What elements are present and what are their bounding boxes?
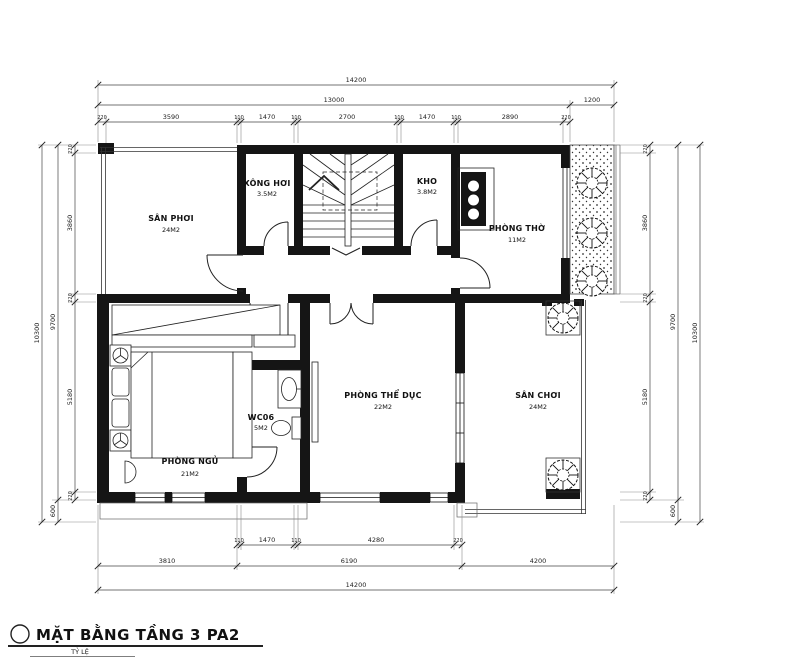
room-label-kho: KHO — [417, 177, 437, 186]
tree-icon — [548, 460, 578, 490]
dim-bottom-1: 1470 — [259, 536, 276, 544]
dim-bottom-2: 110 — [291, 538, 301, 544]
dim-right-4: 220 — [643, 491, 649, 501]
tree-icon — [577, 266, 607, 296]
dim-top-0: 220 — [97, 115, 107, 121]
dim-top-9: 2890 — [502, 113, 519, 121]
dim-right-bottom: 600 — [669, 505, 677, 517]
dim-right-outer: 10300 — [691, 323, 699, 344]
room-area-wc: 5M2 — [254, 424, 268, 432]
tree-icon — [577, 218, 607, 248]
tree-icon — [548, 303, 578, 333]
dim-top-main: 13000 — [324, 96, 345, 104]
altar-cabinet — [458, 168, 494, 230]
floor-plan-drawing: 14200 13000 1200 220 3590 110 1470 110 2… — [0, 0, 800, 658]
dim-top-10: 220 — [561, 115, 571, 121]
dim-left-bottom: 600 — [49, 505, 57, 517]
drawing-title: MẶT BẰNG TẦNG 3 PA2 — [36, 623, 240, 644]
scale-label: TỶ LỆ — [70, 647, 89, 656]
dim-bottom-mid-0: 3810 — [159, 557, 176, 565]
room-label-wc: WC06 — [248, 413, 275, 422]
floor-plan-sheet: 14200 13000 1200 220 3590 110 1470 110 2… — [0, 0, 800, 658]
dim-right-2: 220 — [643, 293, 649, 303]
dim-top-2: 110 — [234, 115, 244, 121]
title-block: MẶT BẰNG TẦNG 3 PA2 TỶ LỆ — [8, 623, 263, 657]
dim-top-1: 3590 — [163, 113, 180, 121]
dim-bottom-mid-1: 6190 — [341, 557, 358, 565]
dim-left-2: 220 — [68, 293, 74, 303]
room-label-xong-hoi: XÔNG HƠI — [244, 177, 291, 188]
dim-bottom-0: 110 — [234, 538, 244, 544]
dim-top-4: 110 — [291, 115, 301, 121]
dim-top-7: 1470 — [419, 113, 436, 121]
dim-left-outer: 10300 — [33, 323, 41, 344]
dim-top-5: 2700 — [339, 113, 356, 121]
dim-top-planter: 1200 — [584, 96, 601, 104]
dim-left-1: 3860 — [66, 215, 74, 232]
dim-bottom-3: 4280 — [368, 536, 385, 544]
dim-right-0: 220 — [643, 144, 649, 154]
room-area-san-phoi: 24M2 — [162, 226, 180, 234]
room-area-phong-the-duc: 22M2 — [374, 403, 392, 411]
dim-bottom-mid-2: 4200 — [530, 557, 547, 565]
dim-right-inner: 9700 — [669, 314, 677, 331]
dim-left-3: 5180 — [66, 389, 74, 406]
dim-top-total: 14200 — [346, 76, 367, 84]
dim-bottom-total: 14200 — [346, 581, 367, 589]
dim-top-6: 110 — [394, 115, 404, 121]
room-label-san-phoi: SÂN PHƠI — [148, 212, 194, 223]
room-area-kho: 3.8M2 — [417, 188, 437, 196]
dim-right-3: 5180 — [641, 389, 649, 406]
wc-fixtures — [272, 370, 303, 439]
dim-top-3: 1470 — [259, 113, 276, 121]
dim-top-8: 110 — [451, 115, 461, 121]
room-label-san-choi: SÂN CHƠI — [515, 389, 561, 400]
staircase — [303, 154, 394, 255]
dim-right-1: 3860 — [641, 215, 649, 232]
dim-left-0: 220 — [68, 144, 74, 154]
title-marker-icon — [11, 625, 29, 643]
room-area-phong-ngu: 21M2 — [181, 470, 199, 478]
room-area-san-choi: 24M2 — [529, 403, 547, 411]
dim-left-inner: 9700 — [49, 314, 57, 331]
room-area-phong-tho: 11M2 — [508, 236, 526, 244]
gym-mirror — [312, 362, 318, 442]
tree-icon — [577, 168, 607, 198]
room-label-phong-the-duc: PHÒNG THỂ DỤC — [344, 388, 421, 400]
room-label-phong-tho: PHÒNG THỜ — [489, 222, 545, 233]
dim-bottom-4: 220 — [453, 538, 463, 544]
room-area-xong-hoi: 3.5M2 — [257, 190, 277, 198]
planter-strip — [570, 145, 614, 296]
dim-left-4: 220 — [68, 491, 74, 501]
